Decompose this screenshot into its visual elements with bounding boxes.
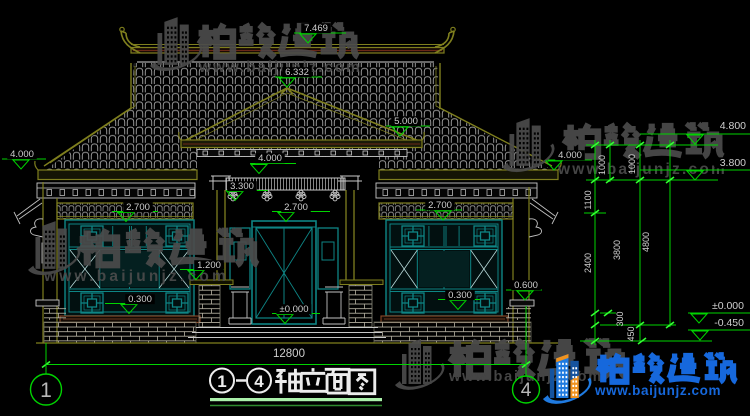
svg-text:4.000: 4.000: [558, 150, 582, 161]
svg-text:2.700: 2.700: [126, 202, 150, 213]
svg-text:12800: 12800: [273, 348, 305, 360]
svg-text:4: 4: [254, 372, 264, 391]
svg-text:1.200: 1.200: [197, 260, 221, 271]
svg-text:7.469: 7.469: [304, 23, 328, 34]
svg-text:6.332: 6.332: [285, 67, 309, 78]
svg-text:2.700: 2.700: [284, 202, 308, 213]
svg-text:1000: 1000: [627, 154, 637, 174]
svg-text:-0.450: -0.450: [714, 317, 744, 329]
svg-text:2.700: 2.700: [428, 200, 452, 211]
svg-text:4.000: 4.000: [10, 149, 34, 160]
svg-text:1: 1: [217, 372, 226, 391]
svg-text:www.baijunjz.com: www.baijunjz.com: [594, 383, 721, 398]
svg-text:0.600: 0.600: [514, 280, 538, 291]
svg-text:4800: 4800: [641, 232, 651, 252]
svg-text:±0.000: ±0.000: [712, 300, 744, 312]
svg-text:4.000: 4.000: [258, 153, 282, 164]
svg-text:450: 450: [626, 326, 636, 341]
svg-text:1: 1: [40, 379, 52, 402]
svg-text:2400: 2400: [583, 253, 593, 273]
svg-text:1000: 1000: [597, 155, 607, 175]
svg-text:3.800: 3.800: [720, 157, 746, 169]
svg-text:0.300: 0.300: [448, 290, 472, 301]
svg-text:www.baijunjz.com: www.baijunjz.com: [198, 59, 362, 76]
svg-text:0.300: 0.300: [128, 294, 152, 305]
svg-text:3.300: 3.300: [230, 181, 254, 192]
svg-text:3800: 3800: [612, 240, 622, 260]
svg-text:1100: 1100: [583, 190, 593, 209]
svg-text:±0.000: ±0.000: [280, 304, 309, 315]
svg-text:4: 4: [521, 380, 532, 401]
svg-text:300: 300: [615, 311, 625, 326]
svg-text:5.000: 5.000: [394, 116, 418, 127]
svg-text:4.800: 4.800: [720, 120, 746, 132]
